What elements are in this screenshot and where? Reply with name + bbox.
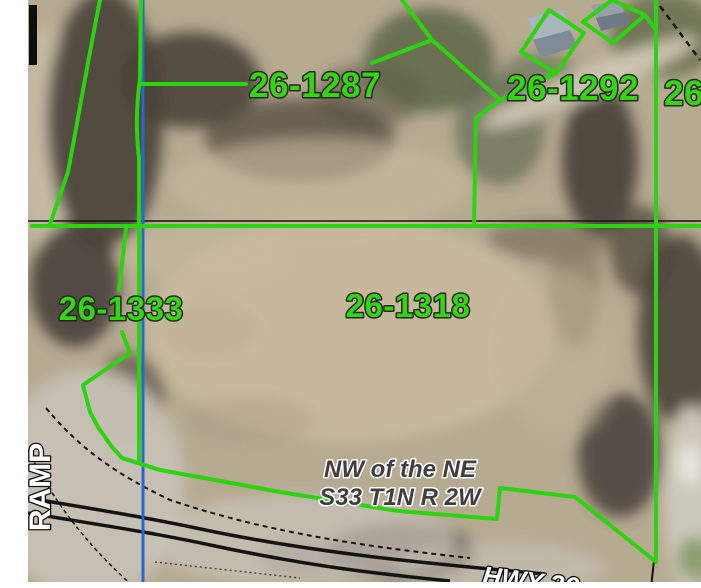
parcel-label-26-1287: 26-1287 [249, 66, 381, 105]
parcel-label-26-1318: 26-1318 [346, 287, 471, 324]
parcel-label-26-partial: 26- [664, 74, 701, 113]
section-note: NW of the NE S33 T1N R 2W [319, 456, 483, 511]
section-note-line2: S33 T1N R 2W [319, 484, 483, 511]
photo-edge-artifact [29, 5, 37, 65]
section-note-line1: NW of the NE [324, 456, 477, 483]
parcel-label-26-1292: 26-1292 [507, 69, 639, 108]
parcel-label-26-1333: 26-1333 [59, 290, 184, 327]
ramp-road-label: RAMP [24, 443, 57, 531]
parcel-map: 26-1287 26-1292 26- 26-1333 26-1318 NW o… [0, 0, 701, 588]
parcel-map-viewport[interactable]: 26-1287 26-1292 26- 26-1333 26-1318 NW o… [0, 0, 701, 588]
